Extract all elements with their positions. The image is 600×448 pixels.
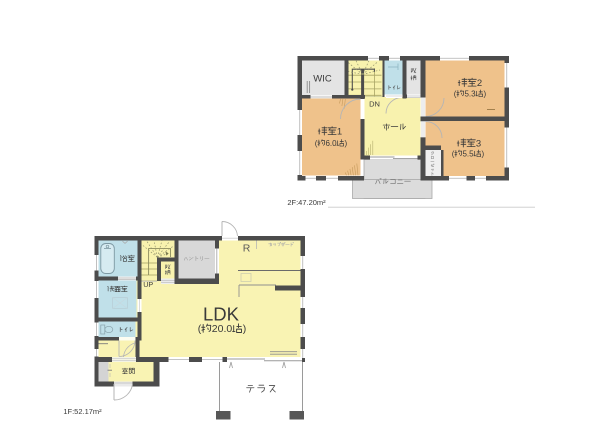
svg-text:LDK: LDK xyxy=(203,304,240,325)
svg-text:(: ( xyxy=(454,89,457,98)
svg-text:(: ( xyxy=(315,139,318,148)
svg-text:R: R xyxy=(243,243,251,255)
svg-text:DN: DN xyxy=(369,100,380,109)
svg-text:(: ( xyxy=(198,323,202,335)
svg-text:3: 3 xyxy=(476,138,481,149)
svg-text:6.0: 6.0 xyxy=(325,139,337,148)
svg-text:2F:47.20m²: 2F:47.20m² xyxy=(287,198,326,207)
svg-text:): ) xyxy=(243,323,247,335)
svg-text:(: ( xyxy=(452,149,455,158)
svg-text:20.0: 20.0 xyxy=(212,323,233,335)
svg-text:WIC: WIC xyxy=(313,74,332,85)
svg-text:1F:52.17m²: 1F:52.17m² xyxy=(63,407,102,416)
svg-text:5.3: 5.3 xyxy=(464,89,476,98)
svg-text:1: 1 xyxy=(337,126,342,137)
svg-text:): ) xyxy=(345,139,348,148)
svg-text:2: 2 xyxy=(477,78,482,89)
svg-text:5.5: 5.5 xyxy=(462,149,474,158)
svg-text:): ) xyxy=(482,149,485,158)
svg-text:): ) xyxy=(484,89,487,98)
